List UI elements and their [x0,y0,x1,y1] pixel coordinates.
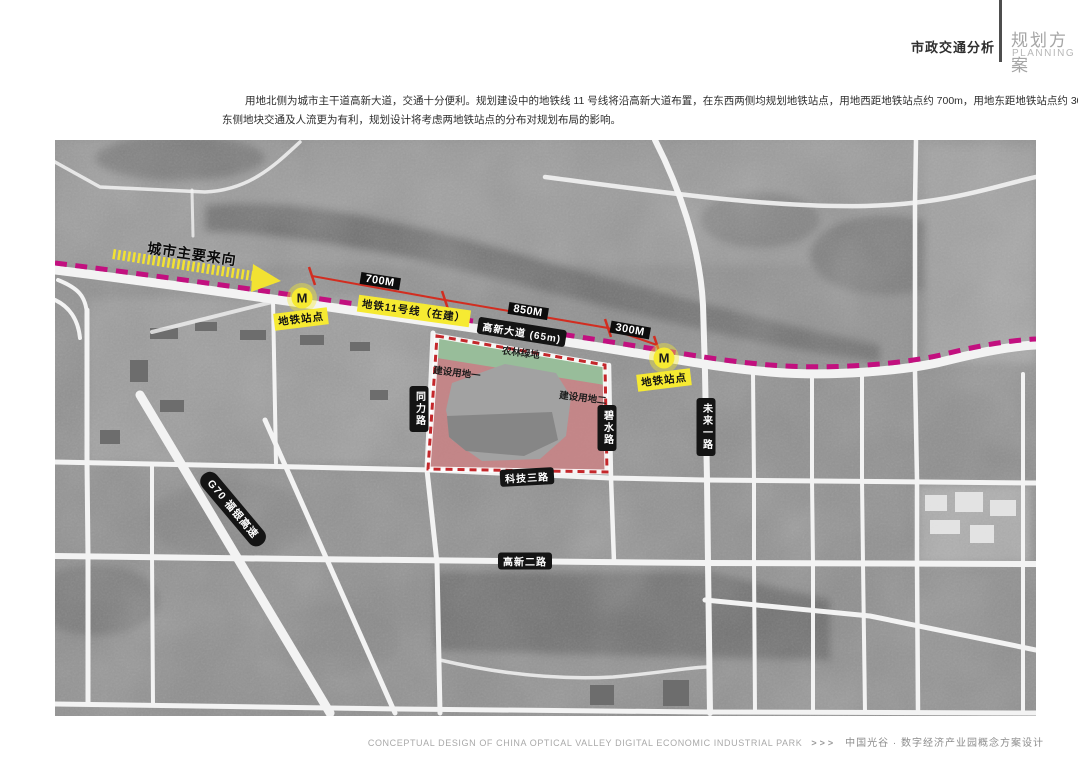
metro-icon-east: M [659,351,670,366]
footer-title-zh: 中国光谷 · 数字经济产业园概念方案设计 [845,734,1044,749]
intro-line-1: 用地北侧为城市主干道高新大道，交通十分便利。规划建设中的地铁线 11 号线将沿高… [222,92,1068,111]
road-label-weilai: 未来一路 [697,398,716,456]
footer-separator-icon: >>> [811,738,836,748]
road-label-bishui: 碧水路 [598,405,617,451]
footer: CONCEPTUAL DESIGN OF CHINA OPTICAL VALLE… [368,734,1044,749]
scheme-subtitle: PLANNING [1012,48,1075,59]
map-canvas [55,140,1036,716]
road-label-tongli: 同力路 [410,386,429,432]
footer-title-en: CONCEPTUAL DESIGN OF CHINA OPTICAL VALLE… [368,738,802,748]
road-label-keji3: 科技三路 [500,467,555,487]
metro-icon-west: M [297,291,308,306]
header-divider [999,0,1002,62]
satellite-map [55,140,1036,716]
intro-paragraph: 用地北侧为城市主干道高新大道，交通十分便利。规划建设中的地铁线 11 号线将沿高… [222,92,1068,130]
road-label-gaoxin2: 高新二路 [498,553,552,570]
intro-line-2: 东侧地块交通及人流更为有利，规划设计将考虑两地铁站点的分布对规划布局的影响。 [222,111,1068,130]
page-section-title: 市政交通分析 [911,37,995,56]
planning-page: 市政交通分析 规划方案 PLANNING 用地北侧为城市主干道高新大道，交通十分… [0,0,1078,761]
